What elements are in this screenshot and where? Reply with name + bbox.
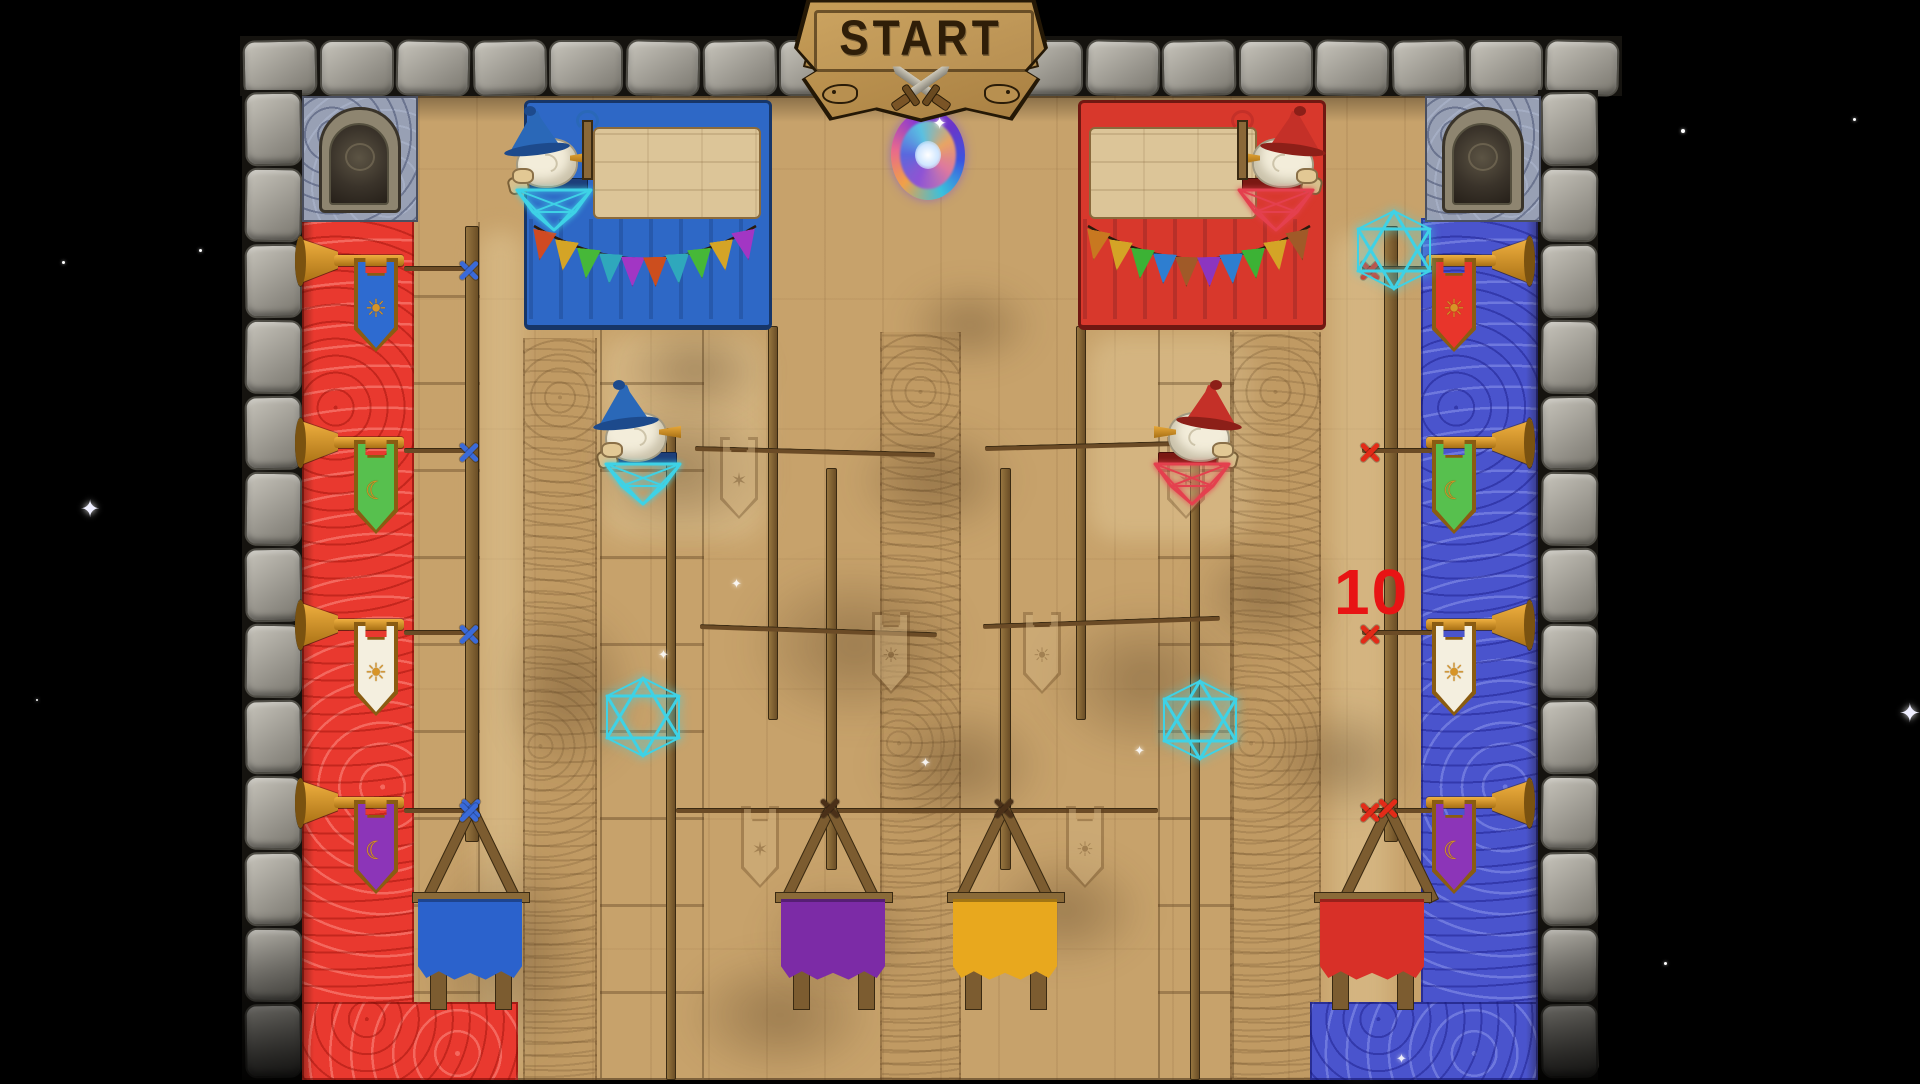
star-icon: [199, 249, 202, 252]
rope-anchor-icon: [1358, 800, 1382, 824]
trumpet-rim-icon: [1524, 236, 1535, 286]
wall-stone: [1162, 39, 1237, 97]
wall-stone: [1540, 700, 1598, 775]
crescent-symbol-icon: ☾: [354, 479, 398, 504]
floor-sparkle-icon: ✦: [731, 577, 742, 590]
sun-symbol-icon: ☀: [1432, 297, 1476, 322]
trumpet-rim-icon: [1524, 418, 1535, 468]
hat-tip-icon: [613, 380, 625, 390]
wizard-snout: [512, 168, 534, 184]
bucket-stand-red[interactable]: [1312, 794, 1432, 1084]
bucket-stand-blue[interactable]: [410, 794, 530, 1084]
hexagram-web-icon[interactable]: [597, 673, 689, 761]
wall-stone: [1540, 776, 1598, 851]
hat-tip-icon: [524, 106, 536, 116]
wall-stone: [242, 39, 317, 97]
portal[interactable]: ✦: [891, 110, 965, 200]
trumpet-rim-icon: [1524, 778, 1535, 828]
hat-tip-icon: [1210, 380, 1222, 390]
sun-symbol-icon: ☀: [1023, 646, 1061, 666]
cave-swirl-icon: [345, 143, 375, 171]
wall-stone: [1469, 40, 1543, 96]
rope-anchor-icon: [457, 622, 481, 646]
trumpet-rim-icon: [295, 600, 306, 650]
wall-stone: [1540, 92, 1598, 167]
star-icon: [1664, 962, 1667, 965]
gargoyle-alcove-left: [302, 96, 418, 222]
floor-smudge: [1190, 540, 1340, 650]
wall-stone: [1540, 396, 1598, 471]
trumpet-rim-icon: [295, 418, 306, 468]
wall-stone: [1315, 39, 1390, 97]
track-beam: [768, 326, 778, 720]
floor-smudge: [900, 280, 1040, 370]
wall-stone: [244, 92, 302, 167]
wall-stone: [244, 320, 302, 395]
cave-opening-icon: [1452, 123, 1512, 205]
sign-board: START: [798, 0, 1044, 122]
wall-stone: [244, 700, 302, 775]
wall-stone: [244, 776, 302, 851]
launcher-hook-icon: [576, 110, 599, 131]
wall-shadow: [242, 910, 302, 1080]
cave-opening-icon: [329, 123, 389, 205]
crescent-symbol-icon: ☾: [1432, 839, 1476, 864]
wall-stone: [320, 40, 394, 96]
wizard-blue[interactable]: [601, 386, 685, 490]
wizard-red[interactable]: [1150, 386, 1234, 490]
wall-stone: [244, 168, 302, 243]
wall-stone: [472, 39, 547, 97]
wall-stone: [1391, 39, 1466, 97]
star-icon: [62, 261, 65, 264]
crescent-symbol-icon: ☾: [1432, 479, 1476, 504]
game-stage: ✦ 10 START ✦✦✦✦✦✦✦☀☀☾☾☀☀☾☾✶✶☀☀✶☀: [0, 0, 1920, 1080]
duck-head-icon: [822, 84, 858, 104]
hexagram-web-icon[interactable]: [1348, 206, 1440, 294]
rope-binding-icon: [992, 796, 1016, 820]
launcher-hook-icon: [1231, 110, 1254, 131]
gargoyle-arch-icon: [319, 107, 401, 213]
start-sign[interactable]: START: [798, 0, 1044, 122]
bucket-cloth: [1320, 899, 1424, 983]
stone-wall-right: [1538, 90, 1598, 1080]
sun-symbol-icon: ☀: [354, 297, 398, 322]
tripod-leg-icon: [1000, 806, 1055, 904]
star-icon: ✦: [1899, 700, 1920, 726]
trumpet-rim-icon: [1524, 600, 1535, 650]
star-icon: [1681, 129, 1685, 133]
wall-stone: [1540, 472, 1598, 547]
star-icon: ✦: [80, 498, 100, 522]
stone-wall-left: [242, 90, 302, 1080]
sign-title: START: [798, 11, 1044, 67]
wall-stone: [244, 396, 302, 471]
rope-binding-icon: [818, 796, 842, 820]
sun-symbol-icon: ☀: [1066, 840, 1104, 860]
floor-sparkle-icon: ✦: [920, 756, 931, 769]
crescent-symbol-icon: ☾: [354, 839, 398, 864]
bucket-cloth: [781, 899, 885, 983]
wizard-blue[interactable]: [512, 112, 596, 216]
wizard-red[interactable]: [1234, 112, 1318, 216]
floor-sparkle-icon: ✦: [1134, 744, 1145, 757]
rope-anchor-icon: [457, 800, 481, 824]
track-beam: [1384, 226, 1398, 842]
gargoyle-alcove-right: [1425, 96, 1541, 222]
wall-stone: [1545, 39, 1620, 97]
rope-anchor-icon: [457, 258, 481, 282]
wall-shadow: [1538, 910, 1598, 1080]
trumpet-rim-icon: [295, 236, 306, 286]
tripod-leg-icon: [780, 806, 835, 904]
duck-head-icon: [984, 84, 1020, 104]
wall-stone: [1540, 624, 1598, 699]
wall-stone: [244, 624, 302, 699]
sun-symbol-icon: ☀: [1432, 661, 1476, 686]
height-marker-value: 10: [1334, 560, 1409, 624]
star-icon: [1853, 118, 1856, 121]
wall-stone: [1540, 320, 1598, 395]
blue-bed: [593, 127, 761, 219]
wall-stone: [1239, 40, 1313, 96]
wizard-snout: [1296, 168, 1318, 184]
floor-sparkle-icon: ✦: [658, 648, 669, 661]
bucket-stand-purple[interactable]: [773, 794, 893, 1084]
star-icon: [36, 699, 38, 701]
wall-stone: [244, 244, 302, 319]
wizard-snout: [601, 442, 623, 458]
wall-stone: [1540, 244, 1598, 319]
star-symbol-icon: ✶: [720, 471, 758, 491]
sun-symbol-icon: ☀: [872, 646, 910, 666]
track-beam: [465, 226, 479, 842]
cave-swirl-icon: [1468, 143, 1498, 171]
wall-stone: [244, 472, 302, 547]
wall-stone: [549, 40, 623, 96]
wall-stone: [1540, 168, 1598, 243]
gargoyle-arch-icon: [1442, 107, 1524, 213]
track-beam: [1076, 326, 1086, 720]
wizard-snout: [1212, 442, 1234, 458]
bucket-cloth: [953, 899, 1057, 983]
hexagram-web-icon[interactable]: [1154, 676, 1246, 764]
wall-stone: [244, 548, 302, 623]
wall-stone: [1085, 39, 1160, 97]
tripod-leg-icon: [826, 806, 881, 904]
tripod-leg-icon: [954, 806, 1009, 904]
hat-tip-icon: [1294, 106, 1306, 116]
red-bed: [1089, 127, 1257, 219]
wall-stone: [396, 39, 471, 97]
rope-anchor-icon: [1358, 440, 1382, 464]
trumpet-rim-icon: [295, 778, 306, 828]
bucket-stand-gold[interactable]: [945, 794, 1065, 1084]
wall-stone: [625, 39, 700, 97]
wall-stone: [702, 39, 777, 97]
rope-anchor-icon: [457, 440, 481, 464]
bucket-cloth: [418, 899, 522, 983]
wall-stone: [1540, 548, 1598, 623]
sun-symbol-icon: ☀: [354, 661, 398, 686]
floor-smudge: [850, 420, 1020, 540]
